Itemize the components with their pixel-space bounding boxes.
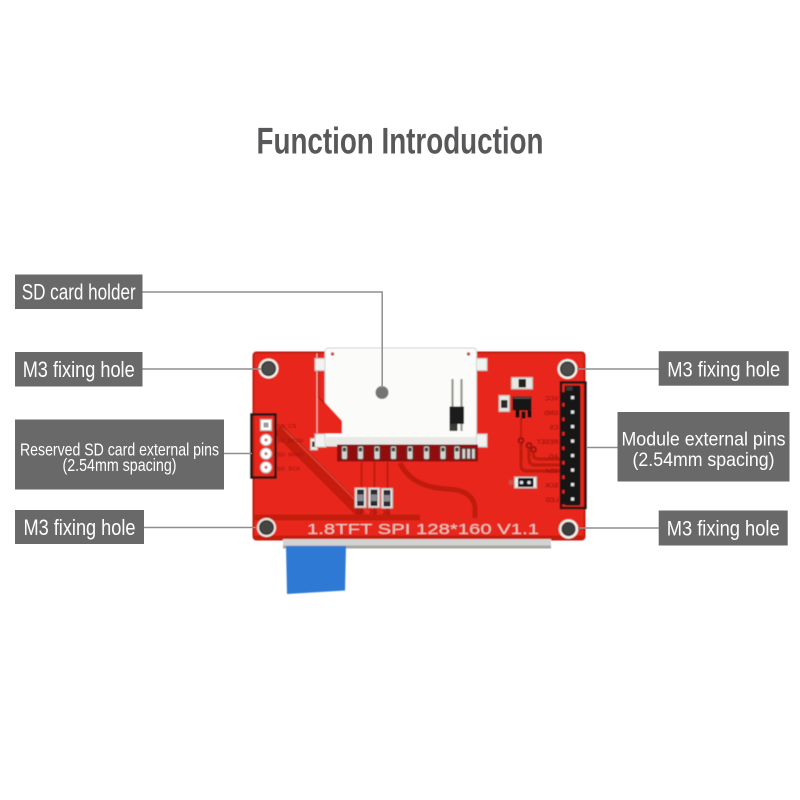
svg-text:(2.54mm spacing): (2.54mm spacing)	[633, 449, 775, 471]
svg-text:SD_MOSI: SD_MOSI	[277, 439, 303, 445]
svg-text:GND: GND	[544, 410, 559, 417]
svg-text:CS: CS	[549, 425, 559, 432]
svg-text:1G: 1G	[356, 510, 364, 516]
svg-text:1.8TFT SPI 128*160 V1.1: 1.8TFT SPI 128*160 V1.1	[307, 521, 539, 538]
svg-text:VCC: VCC	[544, 396, 558, 403]
svg-text:M3 fixing hole: M3 fixing hole	[667, 359, 780, 382]
svg-text:SD_SCK: SD_SCK	[277, 467, 301, 473]
svg-text:Function Introduction: Function Introduction	[257, 121, 544, 162]
svg-text:M3 fixing hole: M3 fixing hole	[24, 515, 136, 540]
svg-text:SD_MISO: SD_MISO	[277, 453, 304, 459]
svg-text:SD_CS: SD_CS	[277, 424, 296, 430]
svg-text:AO: AO	[549, 454, 559, 461]
svg-text:2G: 2G	[370, 510, 378, 516]
svg-text:(2.54mm spacing): (2.54mm spacing)	[63, 455, 177, 475]
svg-text:Module external pins: Module external pins	[622, 428, 786, 450]
svg-text:SDA: SDA	[544, 468, 558, 475]
svg-text:SD card holder: SD card holder	[22, 280, 136, 305]
svg-text:M3 fixing hole: M3 fixing hole	[667, 518, 780, 541]
svg-text:LED: LED	[545, 497, 558, 504]
svg-text:M3 fixing hole: M3 fixing hole	[23, 357, 135, 382]
svg-text:3G: 3G	[383, 511, 391, 517]
svg-text:RESET: RESET	[537, 439, 559, 446]
svg-text:SCK: SCK	[544, 483, 558, 490]
